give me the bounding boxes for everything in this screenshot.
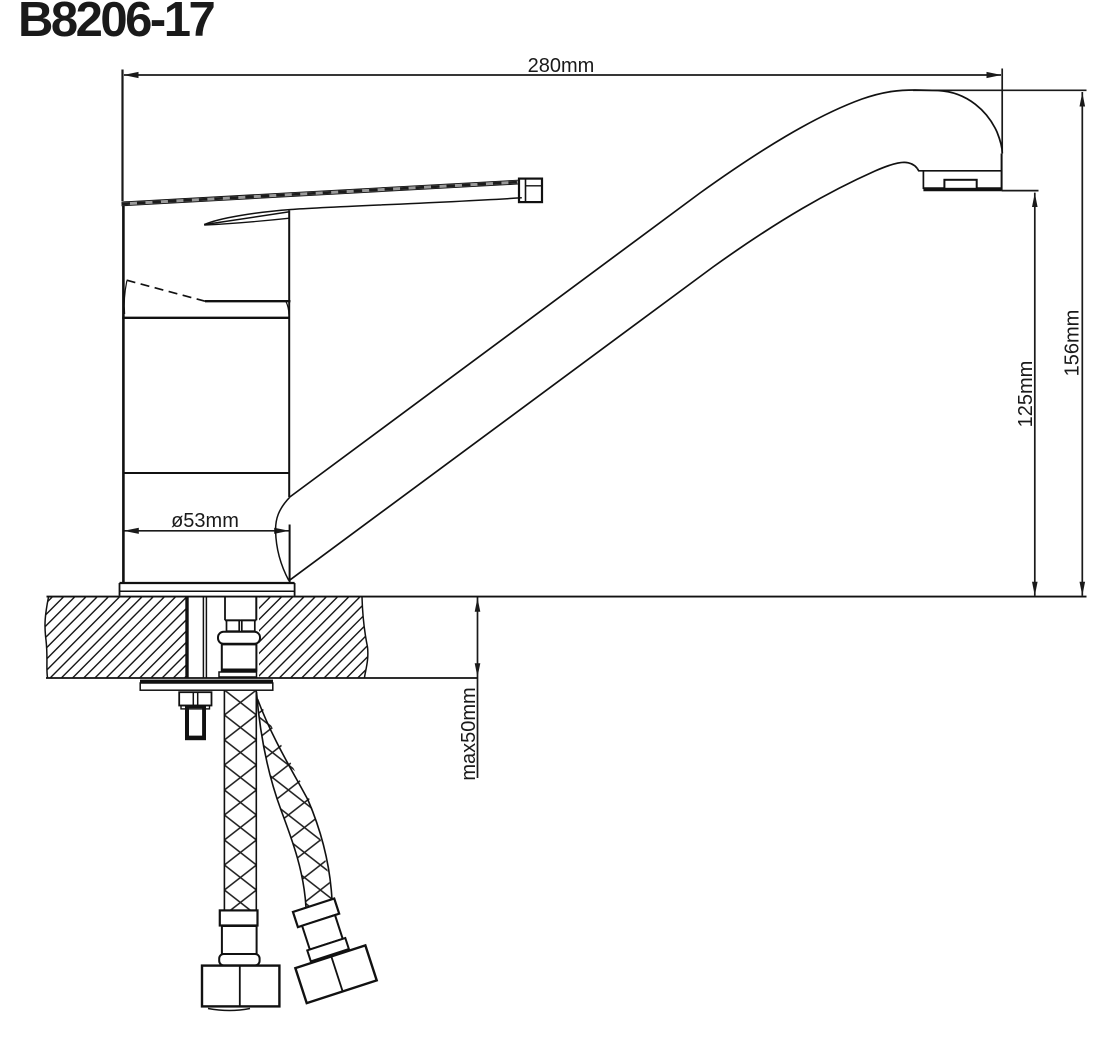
svg-text:156mm: 156mm — [1062, 310, 1084, 377]
svg-text:280mm: 280mm — [528, 55, 595, 77]
svg-text:B8206-17: B8206-17 — [18, 0, 214, 47]
svg-text:ø53mm: ø53mm — [171, 510, 239, 532]
svg-text:max50mm: max50mm — [458, 687, 480, 780]
svg-text:125mm: 125mm — [1015, 361, 1037, 428]
